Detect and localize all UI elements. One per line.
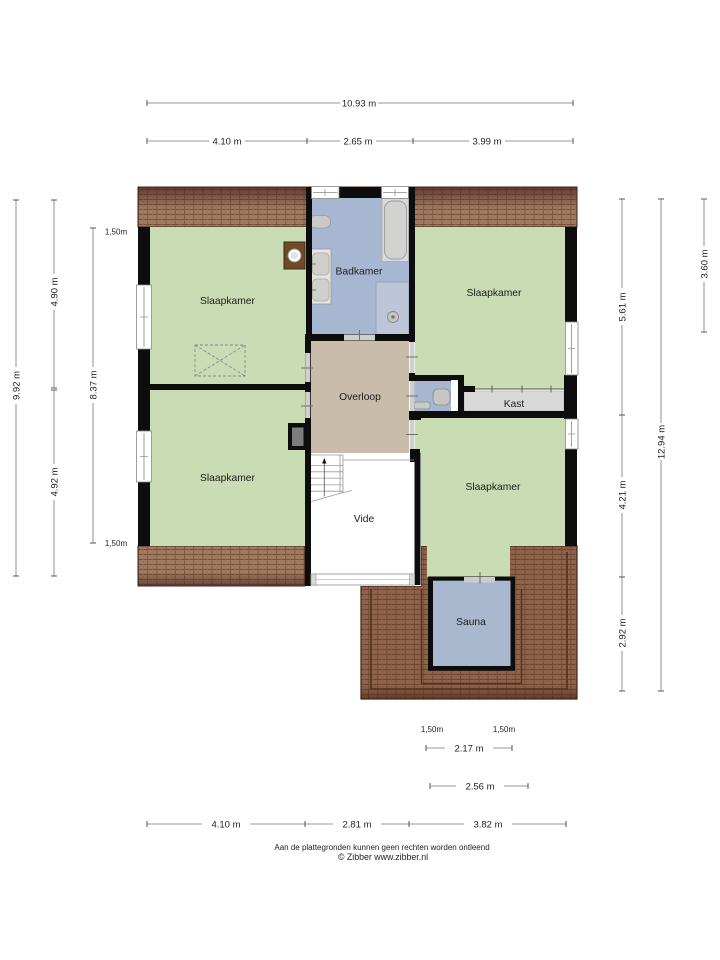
svg-text:1,50m: 1,50m bbox=[421, 725, 444, 734]
svg-text:Badkamer: Badkamer bbox=[336, 267, 384, 278]
svg-text:9.92 m: 9.92 m bbox=[11, 371, 22, 400]
svg-text:Vide: Vide bbox=[354, 514, 375, 525]
svg-text:3.99 m: 3.99 m bbox=[472, 137, 501, 148]
svg-text:1,50m: 1,50m bbox=[105, 228, 128, 237]
svg-text:3.82 m: 3.82 m bbox=[473, 820, 502, 831]
svg-text:1,50m: 1,50m bbox=[105, 539, 128, 548]
svg-text:Slaapkamer: Slaapkamer bbox=[200, 473, 256, 484]
svg-text:1,50m: 1,50m bbox=[493, 725, 516, 734]
svg-text:10.93 m: 10.93 m bbox=[342, 99, 376, 110]
svg-text:Overloop: Overloop bbox=[339, 392, 381, 403]
svg-text:2.65 m: 2.65 m bbox=[343, 137, 372, 148]
svg-text:Slaapkamer: Slaapkamer bbox=[466, 482, 522, 493]
svg-text:Aan de plattegronden kunnen ge: Aan de plattegronden kunnen geen rechten… bbox=[274, 843, 489, 852]
svg-text:Slaapkamer: Slaapkamer bbox=[467, 288, 523, 299]
svg-text:4.10 m: 4.10 m bbox=[212, 137, 241, 148]
svg-text:4.90 m: 4.90 m bbox=[49, 277, 60, 306]
svg-text:Kast: Kast bbox=[504, 399, 525, 410]
svg-text:3.60 m: 3.60 m bbox=[699, 249, 710, 278]
svg-text:2.17 m: 2.17 m bbox=[454, 744, 483, 755]
svg-text:4.10 m: 4.10 m bbox=[211, 820, 240, 831]
svg-text:2.56 m: 2.56 m bbox=[465, 782, 494, 793]
svg-text:© Zibber www.zibber.nl: © Zibber www.zibber.nl bbox=[338, 852, 428, 862]
svg-text:4.92 m: 4.92 m bbox=[49, 467, 60, 496]
svg-text:12.94 m: 12.94 m bbox=[656, 425, 667, 459]
svg-text:Sauna: Sauna bbox=[456, 617, 486, 628]
svg-text:Slaapkamer: Slaapkamer bbox=[200, 296, 256, 307]
svg-text:5.61 m: 5.61 m bbox=[617, 292, 628, 321]
svg-text:2.92 m: 2.92 m bbox=[617, 618, 628, 647]
svg-text:2.81 m: 2.81 m bbox=[342, 820, 371, 831]
svg-text:8.37 m: 8.37 m bbox=[88, 370, 99, 399]
svg-text:4.21 m: 4.21 m bbox=[617, 480, 628, 509]
